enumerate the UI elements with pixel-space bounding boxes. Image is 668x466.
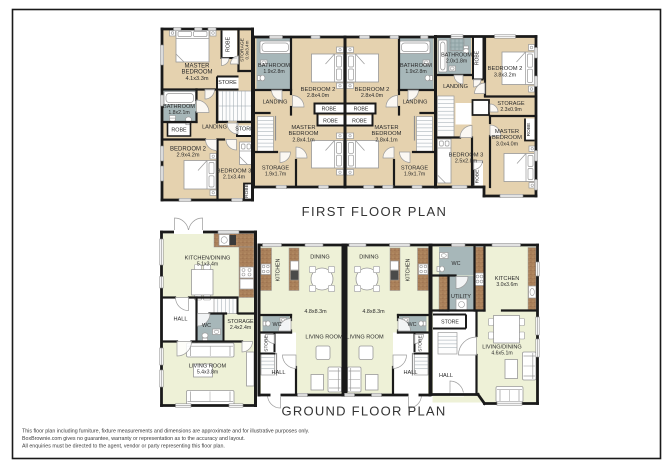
- svg-text:2.0x1.8m: 2.0x1.8m: [446, 59, 467, 65]
- svg-text:STORE: STORE: [264, 335, 270, 351]
- svg-text:2.3x0.9m: 2.3x0.9m: [500, 107, 521, 113]
- svg-text:KITCHEN: KITCHEN: [406, 258, 412, 281]
- svg-text:STORE: STORE: [418, 335, 424, 351]
- svg-text:STORE: STORE: [235, 127, 254, 133]
- svg-text:All enquiries must be directed: All enquiries must be directed to the ag…: [22, 444, 225, 450]
- svg-text:ROBE: ROBE: [475, 50, 481, 65]
- svg-text:2.8x4.0m: 2.8x4.0m: [307, 93, 330, 99]
- svg-text:BEDROOM: BEDROOM: [181, 70, 212, 76]
- svg-text:1.9x1.7m: 1.9x1.7m: [404, 172, 425, 178]
- svg-text:ROBE: ROBE: [475, 170, 481, 184]
- svg-text:BEDROOM 3: BEDROOM 3: [449, 153, 484, 159]
- svg-text:This floor plan including furn: This floor plan including furniture, fix…: [22, 429, 309, 435]
- svg-text:WC: WC: [452, 261, 461, 267]
- svg-text:1.9x2.8m: 1.9x2.8m: [405, 69, 426, 75]
- svg-text:ROBE: ROBE: [244, 184, 250, 198]
- svg-text:DINING: DINING: [310, 255, 330, 261]
- svg-text:LANDING: LANDING: [443, 84, 468, 90]
- svg-text:LANDING: LANDING: [263, 100, 288, 106]
- svg-text:4.8x8.3m: 4.8x8.3m: [304, 309, 327, 315]
- svg-text:4.8x8.3m: 4.8x8.3m: [362, 309, 385, 315]
- svg-text:2.9x4.2m: 2.9x4.2m: [176, 153, 199, 159]
- svg-text:2.8x4.1m: 2.8x4.1m: [292, 137, 315, 143]
- svg-text:5.4x3.8m: 5.4x3.8m: [197, 370, 218, 376]
- svg-text:BoxBrownie.com gives no guaran: BoxBrownie.com gives no guarantee, warra…: [22, 436, 245, 442]
- svg-text:1.9x1.7m: 1.9x1.7m: [265, 172, 286, 178]
- svg-text:HALL: HALL: [439, 373, 453, 379]
- svg-text:2.4x2.4m: 2.4x2.4m: [230, 325, 251, 331]
- svg-text:2.8x4.1m: 2.8x4.1m: [375, 137, 398, 143]
- svg-text:BEDROOM 2: BEDROOM 2: [488, 66, 523, 72]
- svg-text:STORE: STORE: [441, 320, 459, 326]
- svg-text:HALL: HALL: [272, 370, 286, 376]
- svg-text:LIVING ROOM: LIVING ROOM: [346, 335, 384, 341]
- svg-text:ROBE: ROBE: [323, 119, 338, 125]
- svg-text:2.8x4.0m: 2.8x4.0m: [361, 93, 384, 99]
- svg-text:ROBE: ROBE: [352, 119, 367, 125]
- svg-text:ROBE: ROBE: [171, 128, 187, 134]
- svg-text:WC: WC: [202, 323, 211, 329]
- svg-text:ROBE: ROBE: [322, 107, 337, 113]
- svg-text:ROBE: ROBE: [526, 123, 532, 137]
- svg-text:4.6x5.1m: 4.6x5.1m: [491, 351, 512, 357]
- svg-text:HALL: HALL: [404, 370, 418, 376]
- svg-text:DINING: DINING: [359, 255, 379, 261]
- svg-text:LIVING ROOM: LIVING ROOM: [305, 335, 343, 341]
- svg-text:GROUND FLOOR PLAN: GROUND FLOOR PLAN: [282, 404, 447, 419]
- svg-text:KITCHEN: KITCHEN: [276, 258, 282, 281]
- svg-text:WC: WC: [408, 322, 417, 328]
- svg-text:1.8x2.1m: 1.8x2.1m: [168, 110, 189, 116]
- svg-text:BEDROOM: BEDROOM: [372, 131, 402, 137]
- svg-text:BEDROOM: BEDROOM: [289, 131, 319, 137]
- svg-text:STORE: STORE: [218, 80, 237, 86]
- svg-text:BEDROOM: BEDROOM: [492, 135, 522, 141]
- svg-text:HALL: HALL: [174, 317, 188, 323]
- svg-text:WC: WC: [273, 322, 282, 328]
- svg-text:2.1x3.4m: 2.1x3.4m: [223, 175, 246, 181]
- svg-text:4.1x3.3m: 4.1x3.3m: [185, 76, 208, 82]
- svg-text:3.0x3.6m: 3.0x3.6m: [496, 282, 517, 288]
- svg-text:3.0x4.0m: 3.0x4.0m: [496, 141, 519, 147]
- svg-text:ROBE: ROBE: [226, 36, 232, 52]
- svg-text:LANDING: LANDING: [403, 100, 428, 106]
- svg-text:ROBE: ROBE: [354, 107, 369, 113]
- svg-text:FIRST FLOOR PLAN: FIRST FLOOR PLAN: [302, 204, 448, 219]
- svg-text:2.5x2.8m: 2.5x2.8m: [455, 159, 478, 165]
- svg-text:UTILITY: UTILITY: [451, 294, 471, 300]
- svg-text:1.9x2.8m: 1.9x2.8m: [263, 69, 284, 75]
- svg-text:5.1x3.4m: 5.1x3.4m: [197, 262, 218, 268]
- svg-text:3.8x3.2m: 3.8x3.2m: [494, 72, 517, 78]
- svg-text:LANDING: LANDING: [202, 125, 227, 131]
- svg-text:0.9x3.4m: 0.9x3.4m: [245, 40, 250, 59]
